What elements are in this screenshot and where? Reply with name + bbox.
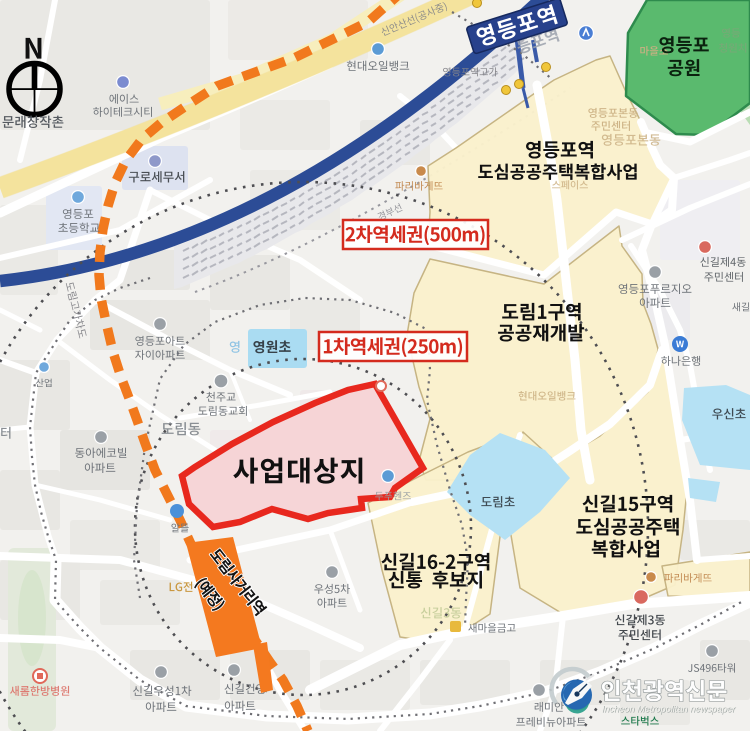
svg-text:Incheon Metropolitan newspaper: Incheon Metropolitan newspaper (602, 704, 736, 714)
